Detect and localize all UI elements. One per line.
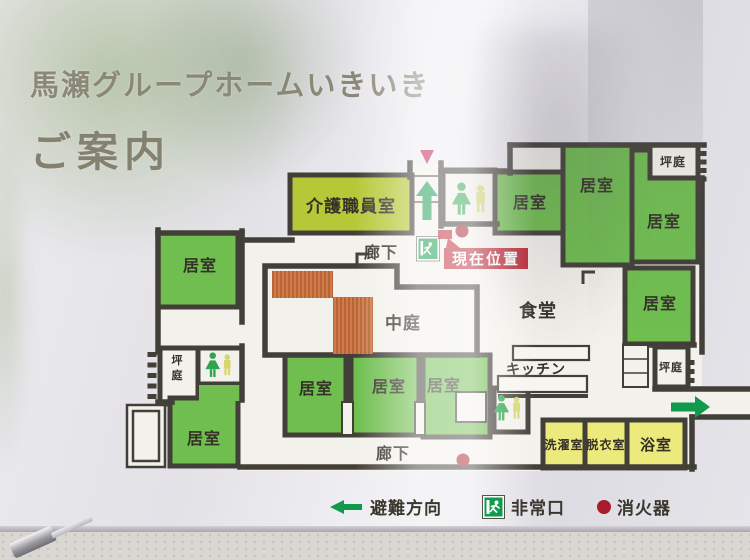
fire-extinguisher-dot bbox=[456, 225, 469, 238]
area-label: キッチン bbox=[506, 362, 566, 378]
legend-extinguisher-label: 消火器 bbox=[617, 494, 671, 519]
room-label: 洗濯室 bbox=[544, 437, 583, 452]
emergency-exit-icon bbox=[417, 237, 440, 262]
fence-dash bbox=[148, 363, 157, 368]
fence-dash bbox=[698, 168, 707, 173]
body bbox=[476, 192, 485, 204]
fence-dash bbox=[698, 151, 707, 156]
room bbox=[563, 145, 632, 265]
fence-dash bbox=[686, 378, 695, 383]
kitchen-counter bbox=[513, 346, 589, 360]
room-alcove bbox=[198, 348, 242, 384]
current-location-label: 現在位置 bbox=[452, 250, 520, 268]
room-alcove bbox=[443, 170, 495, 224]
emergency-exit-icon bbox=[482, 495, 505, 519]
room-label: 居室 bbox=[643, 294, 677, 313]
entrance-porch bbox=[133, 411, 159, 461]
evacuation-arrow-icon bbox=[330, 499, 364, 515]
entry-triangle-marker bbox=[420, 150, 434, 164]
head bbox=[209, 352, 216, 359]
head bbox=[225, 354, 231, 360]
signboard-photo: 馬瀬グループホームいきいき ご案内 現在位置介護職員室居室居室居室坪庭居室坪庭居… bbox=[0, 0, 750, 560]
deck-hatch bbox=[272, 271, 333, 298]
room-label: 脱衣室 bbox=[586, 437, 625, 452]
leg bbox=[517, 411, 519, 418]
fence-dash bbox=[148, 373, 157, 378]
room-label: 坪庭 bbox=[659, 360, 683, 374]
leg bbox=[224, 368, 226, 375]
legend: 避難方向 非常口 消火器 bbox=[330, 494, 677, 519]
room-label: 居室 bbox=[187, 429, 221, 448]
fire-extinguisher-dot bbox=[457, 454, 470, 467]
area-label: 廊下 bbox=[376, 444, 410, 463]
legend-evacuation-label: 避難方向 bbox=[370, 494, 442, 519]
head bbox=[498, 395, 505, 402]
room-label: 居室 bbox=[513, 193, 547, 212]
kitchen-counter bbox=[498, 376, 587, 392]
floor-plan: 現在位置介護職員室居室居室居室坪庭居室坪庭居室坪庭居室居室居室居室洗濯室脱衣室浴… bbox=[0, 0, 750, 560]
door-alcove bbox=[415, 402, 425, 435]
room-label: 居室 bbox=[580, 176, 614, 195]
head bbox=[514, 397, 520, 403]
legend-exit-label: 非常口 bbox=[511, 494, 565, 519]
door-alcove bbox=[456, 392, 486, 422]
head bbox=[477, 185, 484, 192]
area-label: 中庭 bbox=[385, 313, 421, 334]
leg bbox=[498, 412, 500, 420]
current-location-tick bbox=[438, 230, 452, 239]
fence-dash bbox=[698, 160, 707, 165]
room-label: 介護職員室 bbox=[305, 196, 396, 217]
room-label: 居室 bbox=[427, 376, 461, 395]
leg bbox=[228, 368, 230, 375]
wall-strip bbox=[0, 532, 750, 560]
area-label: 廊下 bbox=[364, 243, 398, 262]
leg bbox=[210, 369, 212, 377]
door-alcove bbox=[342, 402, 353, 435]
body bbox=[224, 360, 231, 369]
fence-dash bbox=[686, 369, 695, 374]
room-label: 居室 bbox=[183, 256, 217, 275]
room-label: 坪庭 bbox=[660, 154, 686, 169]
room-connector bbox=[199, 385, 241, 401]
leg bbox=[514, 411, 516, 418]
exit-door bbox=[421, 241, 424, 255]
fence-dash bbox=[698, 177, 707, 182]
room-label: 居室 bbox=[372, 377, 406, 396]
leg bbox=[462, 204, 465, 214]
closet bbox=[623, 345, 648, 387]
fence-dash bbox=[148, 352, 157, 357]
room-label: 居室 bbox=[647, 212, 681, 231]
deck-hatch bbox=[333, 297, 373, 354]
leg bbox=[502, 412, 504, 420]
room-label: 居室 bbox=[299, 379, 333, 398]
fence-dash bbox=[686, 360, 695, 365]
area-label: 食堂 bbox=[518, 300, 557, 322]
head bbox=[457, 183, 466, 192]
room-label: 浴室 bbox=[640, 436, 672, 454]
fence-dash bbox=[148, 384, 157, 389]
leg bbox=[213, 369, 215, 377]
body bbox=[513, 402, 520, 411]
runner-head bbox=[429, 242, 433, 246]
leg bbox=[481, 203, 484, 212]
leg bbox=[477, 203, 480, 212]
fire-extinguisher-icon bbox=[597, 500, 611, 514]
fence-dash bbox=[148, 394, 157, 399]
leg bbox=[458, 204, 461, 214]
